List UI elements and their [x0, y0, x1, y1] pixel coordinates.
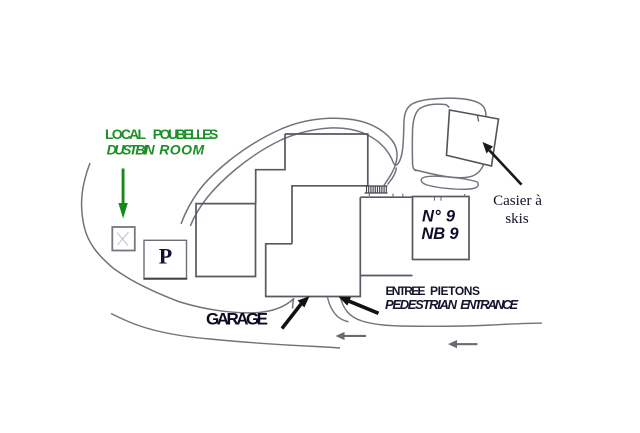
svg-text:N° 9: N° 9	[422, 207, 456, 225]
svg-text:NB 9: NB 9	[422, 225, 460, 243]
svg-text:LOCAL: LOCAL	[105, 126, 146, 142]
svg-text:Casier à: Casier à	[493, 193, 542, 209]
svg-text:skis: skis	[505, 211, 529, 227]
svg-text:ENTRANCE: ENTRANCE	[460, 297, 518, 312]
svg-text:DUSTBIN: DUSTBIN	[107, 141, 156, 157]
svg-text:GARAGE: GARAGE	[206, 310, 268, 329]
svg-text:P: P	[159, 244, 172, 269]
svg-text:ROOM: ROOM	[159, 141, 204, 157]
svg-text:POUBELLES: POUBELLES	[153, 126, 219, 142]
svg-text:PEDESTRIAN: PEDESTRIAN	[385, 297, 458, 312]
